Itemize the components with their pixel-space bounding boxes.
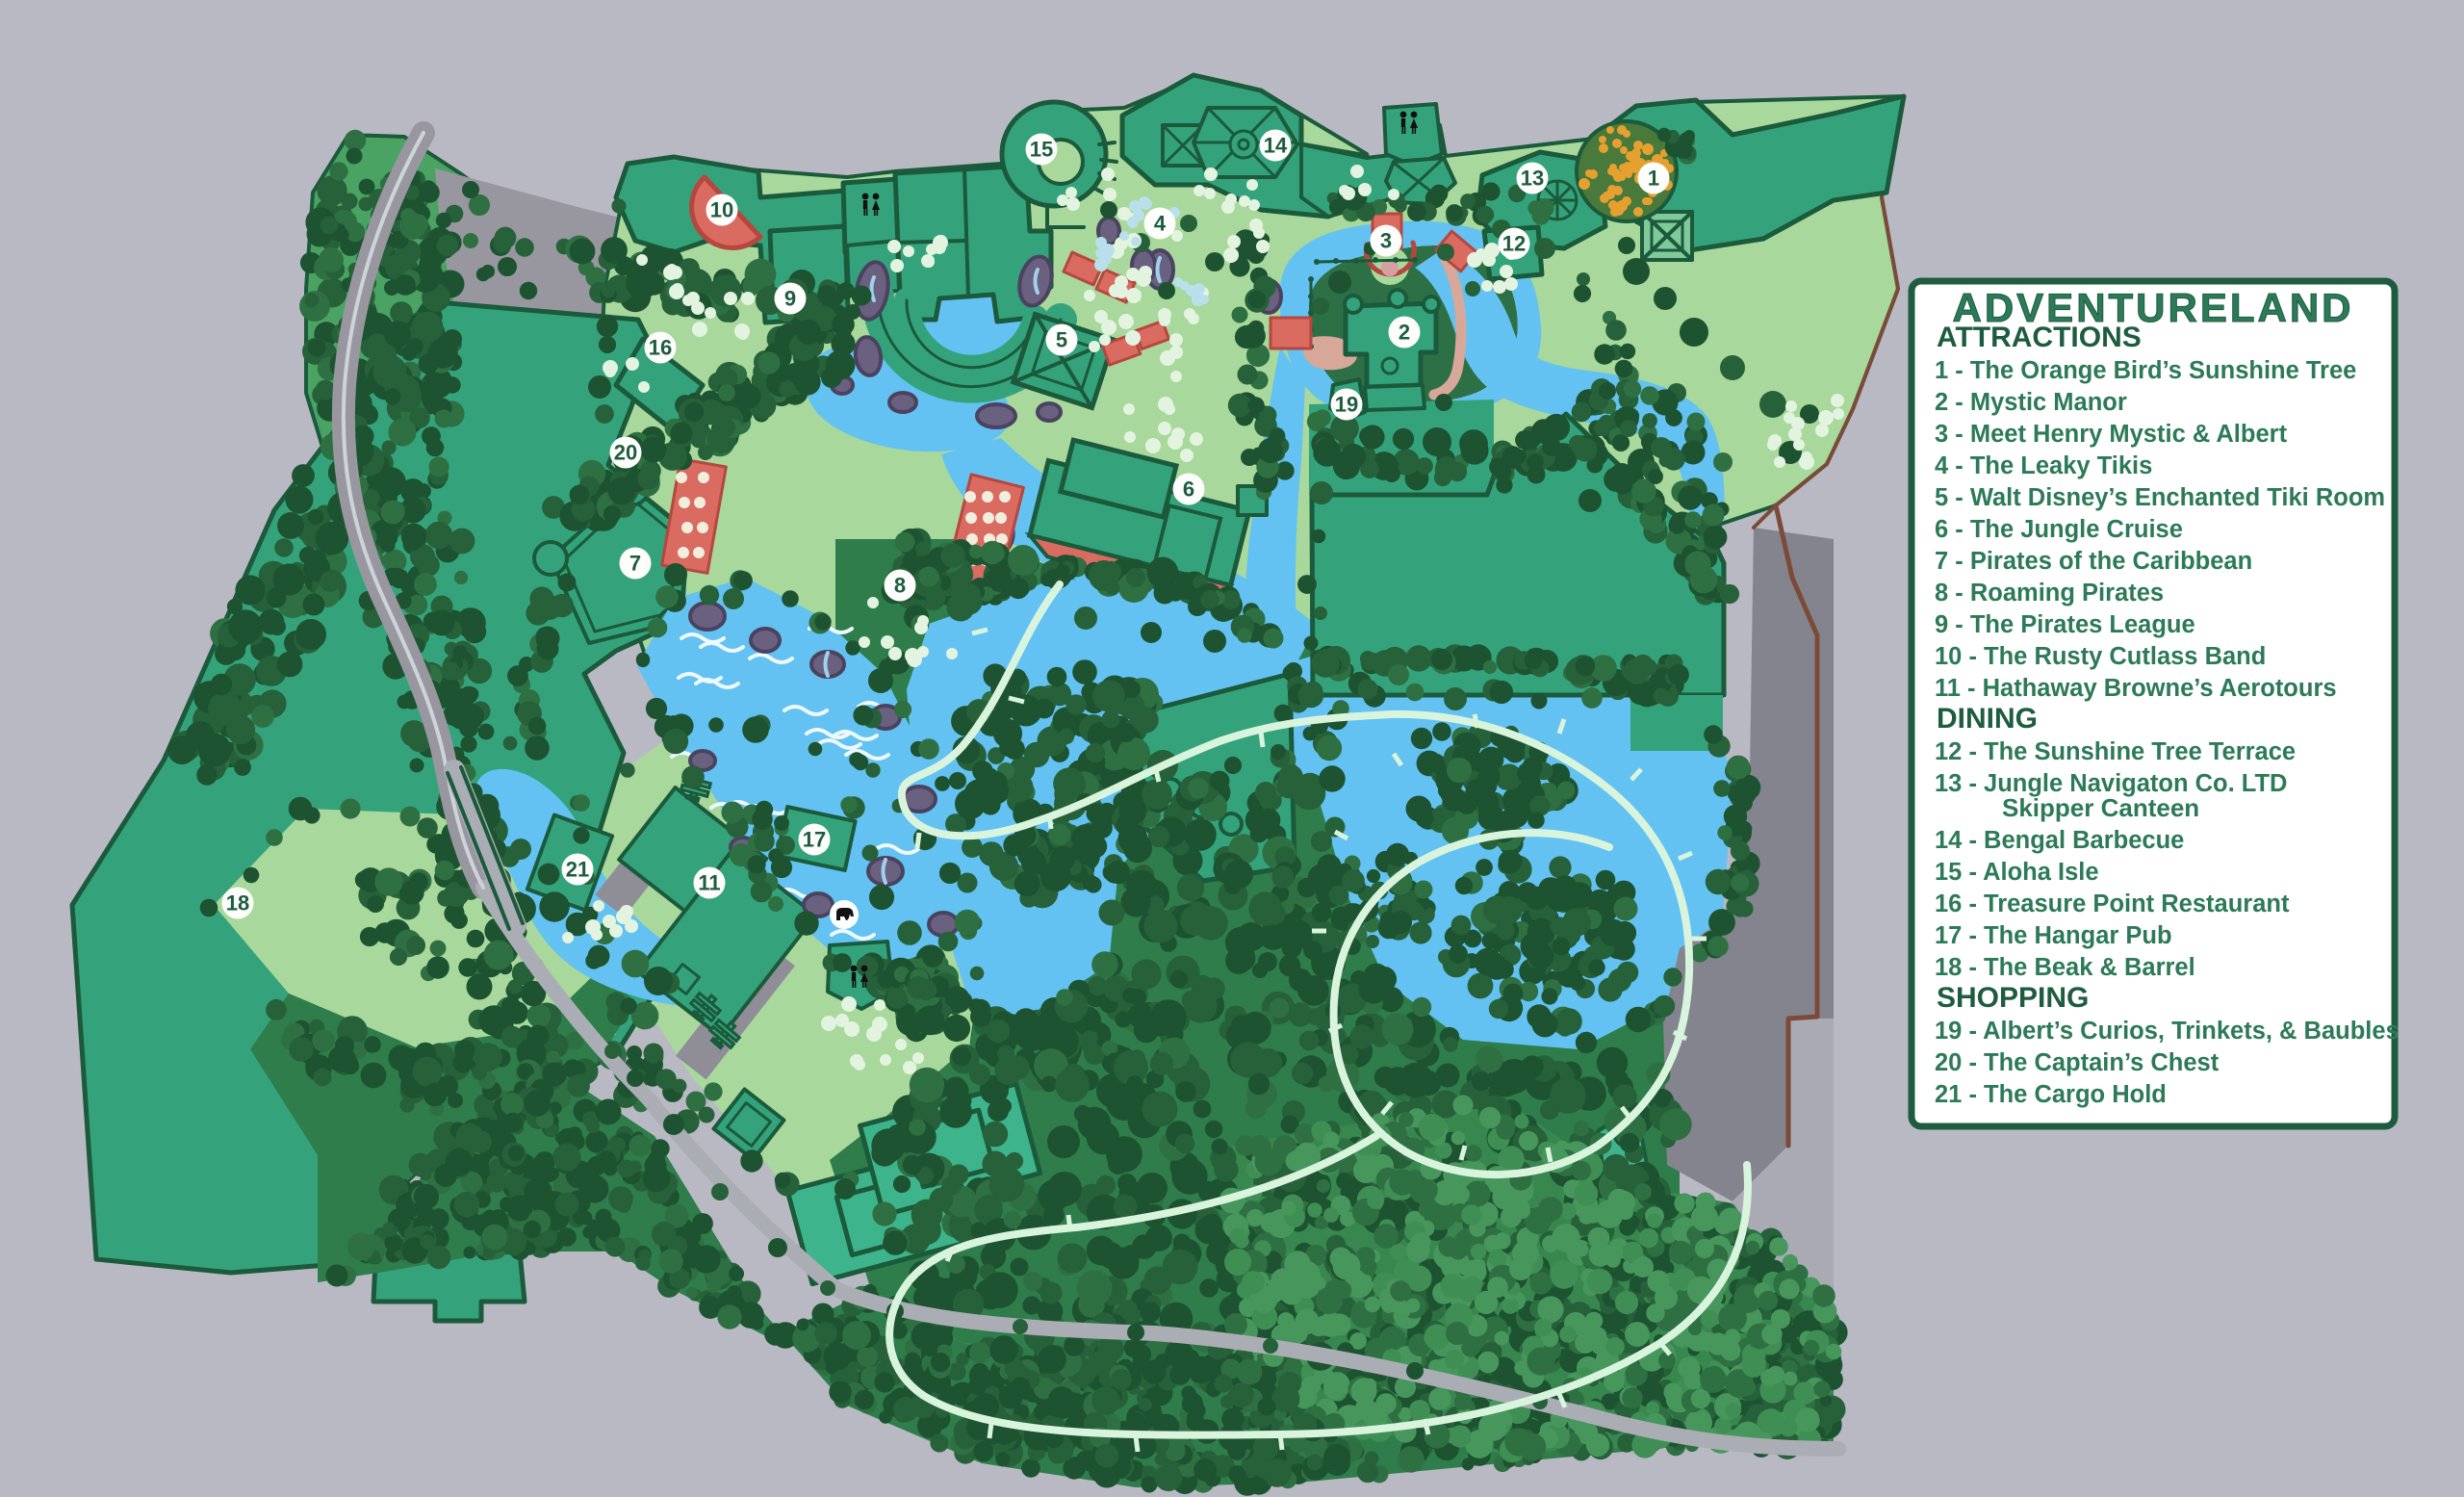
svg-text:11: 11 — [698, 871, 720, 895]
svg-text:14 - Bengal Barbecue: 14 - Bengal Barbecue — [1935, 827, 2184, 854]
svg-text:ATTRACTIONS: ATTRACTIONS — [1937, 322, 2142, 353]
svg-text:5 - Walt Disney’s Enchanted Ti: 5 - Walt Disney’s Enchanted Tiki Room — [1935, 484, 2385, 511]
svg-text:20: 20 — [614, 441, 637, 465]
svg-text:18: 18 — [226, 891, 249, 916]
svg-text:16: 16 — [649, 336, 672, 360]
svg-text:19: 19 — [1335, 393, 1358, 417]
svg-text:21 - The Cargo Hold: 21 - The Cargo Hold — [1935, 1081, 2167, 1108]
svg-text:2 - Mystic Manor: 2 - Mystic Manor — [1935, 389, 2127, 416]
svg-text:9 - The Pirates League: 9 - The Pirates League — [1935, 611, 2195, 638]
svg-text:6 - The Jungle Cruise: 6 - The Jungle Cruise — [1935, 516, 2183, 543]
svg-text:3: 3 — [1380, 229, 1392, 253]
svg-text:8: 8 — [894, 574, 906, 598]
svg-text:20 - The Captain’s Chest: 20 - The Captain’s Chest — [1935, 1049, 2220, 1076]
svg-text:12: 12 — [1502, 232, 1526, 256]
svg-text:SHOPPING: SHOPPING — [1937, 982, 2089, 1014]
svg-text:15 - Aloha Isle: 15 - Aloha Isle — [1935, 859, 2099, 886]
svg-text:17: 17 — [803, 828, 826, 852]
svg-text:9: 9 — [784, 287, 796, 311]
svg-text:14: 14 — [1264, 134, 1288, 158]
svg-text:1 - The Orange Bird’s Sunshine: 1 - The Orange Bird’s Sunshine Tree — [1935, 357, 2356, 384]
svg-text:10: 10 — [710, 198, 733, 222]
svg-text:4: 4 — [1154, 212, 1167, 236]
svg-text:11 - Hathaway Browne’s Aerotou: 11 - Hathaway Browne’s Aerotours — [1935, 675, 2337, 702]
svg-text:13: 13 — [1521, 167, 1544, 191]
svg-text:19 - Albert’s Curios, Trinkets: 19 - Albert’s Curios, Trinkets, & Bauble… — [1935, 1018, 2400, 1045]
svg-text:18 - The Beak & Barrel: 18 - The Beak & Barrel — [1935, 954, 2195, 981]
svg-text:2: 2 — [1399, 321, 1410, 345]
svg-text:1: 1 — [1648, 167, 1659, 191]
svg-text:7: 7 — [629, 552, 641, 576]
svg-text:6: 6 — [1183, 477, 1194, 502]
svg-text:DINING: DINING — [1937, 703, 2038, 735]
svg-text:16 - Treasure Point Restaurant: 16 - Treasure Point Restaurant — [1935, 890, 2290, 917]
svg-text:7 - Pirates of the Caribbean: 7 - Pirates of the Caribbean — [1935, 548, 2252, 575]
svg-text:17 - The Hangar Pub: 17 - The Hangar Pub — [1935, 922, 2172, 949]
svg-text:4 - The Leaky Tikis: 4 - The Leaky Tikis — [1935, 452, 2152, 479]
svg-text:21: 21 — [566, 858, 589, 882]
svg-text:Skipper Canteen: Skipper Canteen — [2002, 793, 2199, 822]
svg-text:5: 5 — [1056, 328, 1067, 352]
svg-text:3 - Meet Henry Mystic & Albert: 3 - Meet Henry Mystic & Albert — [1935, 421, 2288, 448]
svg-text:8 - Roaming Pirates: 8 - Roaming Pirates — [1935, 580, 2164, 607]
svg-text:10 - The Rusty Cutlass Band: 10 - The Rusty Cutlass Band — [1935, 643, 2266, 670]
svg-text:12 - The Sunshine Tree Terrace: 12 - The Sunshine Tree Terrace — [1935, 738, 2296, 765]
svg-text:15: 15 — [1030, 138, 1053, 162]
